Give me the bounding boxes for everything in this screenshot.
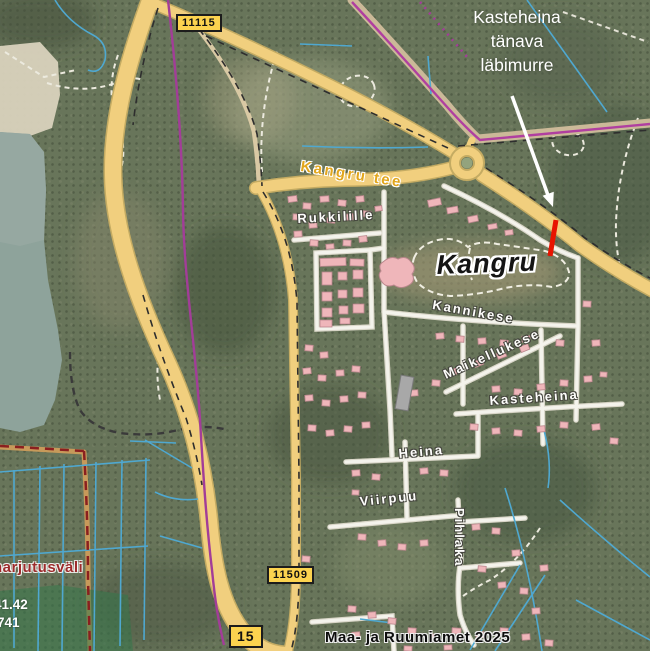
building <box>447 206 459 214</box>
building <box>322 308 332 317</box>
building <box>478 338 486 345</box>
building <box>388 618 396 625</box>
building <box>498 582 506 589</box>
annotation-label: Kasteheina tänava läbimurre <box>438 5 596 77</box>
building <box>326 430 334 437</box>
roundabout <box>455 151 479 175</box>
building <box>584 376 592 383</box>
building <box>467 215 478 223</box>
building <box>322 272 332 285</box>
building <box>600 372 607 377</box>
building <box>358 392 366 398</box>
building <box>353 288 363 297</box>
building <box>492 428 500 435</box>
building <box>303 203 311 210</box>
building <box>432 380 440 387</box>
building <box>436 333 444 340</box>
kangru-centre-building <box>379 258 414 288</box>
building <box>320 258 346 267</box>
building <box>353 304 364 313</box>
building <box>344 426 352 433</box>
building <box>358 534 366 541</box>
building <box>343 240 351 246</box>
building <box>336 370 344 376</box>
building <box>338 200 347 207</box>
building <box>372 474 380 481</box>
building <box>339 306 348 314</box>
building <box>322 400 330 407</box>
area-label-harjutusvali: harjutusväli <box>0 559 83 576</box>
road-number-11509: 11509 <box>267 566 314 584</box>
building <box>320 196 329 203</box>
building <box>318 375 326 381</box>
building <box>560 422 568 429</box>
building <box>427 198 441 208</box>
building <box>305 345 313 352</box>
building <box>338 290 347 298</box>
annotation-line-1: Kasteheina <box>438 5 596 29</box>
gray-building <box>395 375 414 411</box>
annotation-line-3: läbimurre <box>438 53 596 77</box>
building <box>340 318 350 324</box>
building <box>362 422 370 428</box>
building <box>352 490 359 495</box>
street-label-pihlaka: Pihlaka <box>452 508 467 568</box>
building <box>532 608 540 615</box>
parcel-number-2: 741 <box>0 615 20 630</box>
building <box>359 236 368 243</box>
building <box>520 588 528 595</box>
building <box>540 565 548 572</box>
building <box>375 206 383 212</box>
building <box>470 424 478 431</box>
building <box>492 528 500 535</box>
building <box>352 470 360 477</box>
building <box>610 438 618 445</box>
building <box>294 231 302 237</box>
building <box>592 424 601 431</box>
parcel-number-1: 41.42 <box>0 597 28 612</box>
settlement-label-kangru: Kangru <box>436 246 538 280</box>
building <box>320 352 328 359</box>
building <box>326 244 334 250</box>
road-number-11115: 11115 <box>176 14 222 32</box>
attribution-label: Maa- ja Ruumiamet 2025 <box>325 629 510 646</box>
building <box>514 430 522 437</box>
building <box>398 544 406 551</box>
building <box>353 270 363 279</box>
building <box>512 550 520 557</box>
map-container[interactable]: Kasteheina tänava läbimurre 11115 11509 … <box>0 0 650 651</box>
building <box>440 470 448 477</box>
building <box>356 196 365 203</box>
building <box>340 396 348 403</box>
building <box>556 340 564 347</box>
building <box>537 426 545 433</box>
building <box>420 468 428 475</box>
building <box>420 540 428 547</box>
building <box>350 259 364 266</box>
building <box>592 340 600 347</box>
building <box>348 606 356 613</box>
building <box>338 272 347 280</box>
building <box>305 395 313 402</box>
pond-path <box>70 352 228 434</box>
building <box>505 229 514 235</box>
annotation-line-2: tänava <box>438 29 596 53</box>
sand-area <box>0 42 60 136</box>
building <box>545 640 553 647</box>
building <box>352 366 360 373</box>
building <box>488 223 498 229</box>
building <box>310 240 318 247</box>
building <box>302 556 310 563</box>
lake <box>0 132 62 432</box>
building <box>322 292 332 301</box>
building <box>583 301 591 307</box>
building <box>560 380 568 387</box>
building <box>404 646 412 651</box>
map-canvas <box>0 0 650 651</box>
building <box>320 320 332 327</box>
building <box>308 425 316 432</box>
building <box>522 634 530 641</box>
building <box>456 336 464 343</box>
building <box>472 524 480 531</box>
building <box>303 368 312 375</box>
building <box>378 540 386 547</box>
building <box>478 566 486 573</box>
road-number-15: 15 <box>229 625 263 648</box>
building <box>368 612 376 619</box>
building <box>288 195 298 202</box>
